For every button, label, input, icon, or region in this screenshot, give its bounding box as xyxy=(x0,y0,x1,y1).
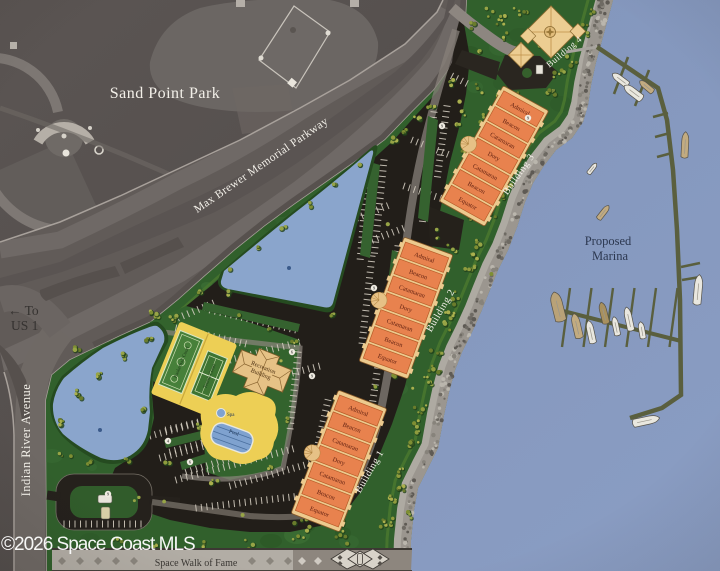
svg-text:US 1: US 1 xyxy=(11,318,38,333)
svg-text:Indian River Avenue: Indian River Avenue xyxy=(19,384,33,497)
svg-text:Marina: Marina xyxy=(592,249,629,263)
svg-text:Sand Point Park: Sand Point Park xyxy=(110,85,221,102)
svg-text:Proposed: Proposed xyxy=(585,234,632,248)
svg-text:©2026 Space Coast MLS: ©2026 Space Coast MLS xyxy=(1,534,195,555)
svg-text:← To: ← To xyxy=(8,303,39,318)
svg-text:Space Walk of Fame: Space Walk of Fame xyxy=(155,558,238,569)
svg-text:Spa: Spa xyxy=(227,413,235,418)
